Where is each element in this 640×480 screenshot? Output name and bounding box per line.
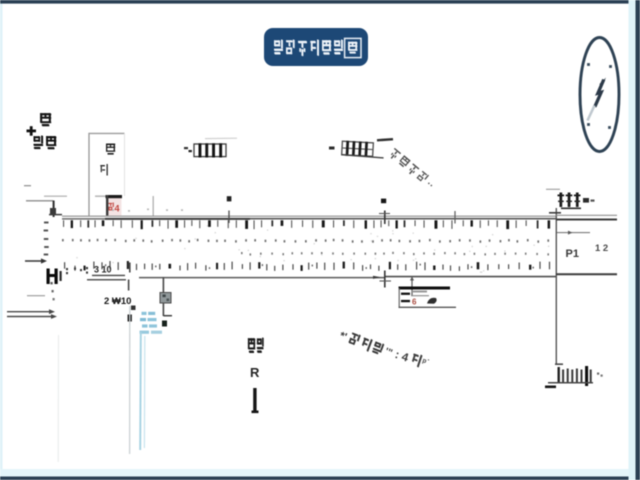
svg-text:2 ₩10: 2 ₩10 xyxy=(104,296,131,307)
svg-text:1 2: 1 2 xyxy=(595,243,608,254)
svg-text:3 10: 3 10 xyxy=(94,265,112,275)
svg-text:4: 4 xyxy=(115,204,120,214)
svg-text:R: R xyxy=(250,365,260,380)
svg-text:6: 6 xyxy=(412,298,417,307)
svg-text:P1: P1 xyxy=(566,248,579,260)
